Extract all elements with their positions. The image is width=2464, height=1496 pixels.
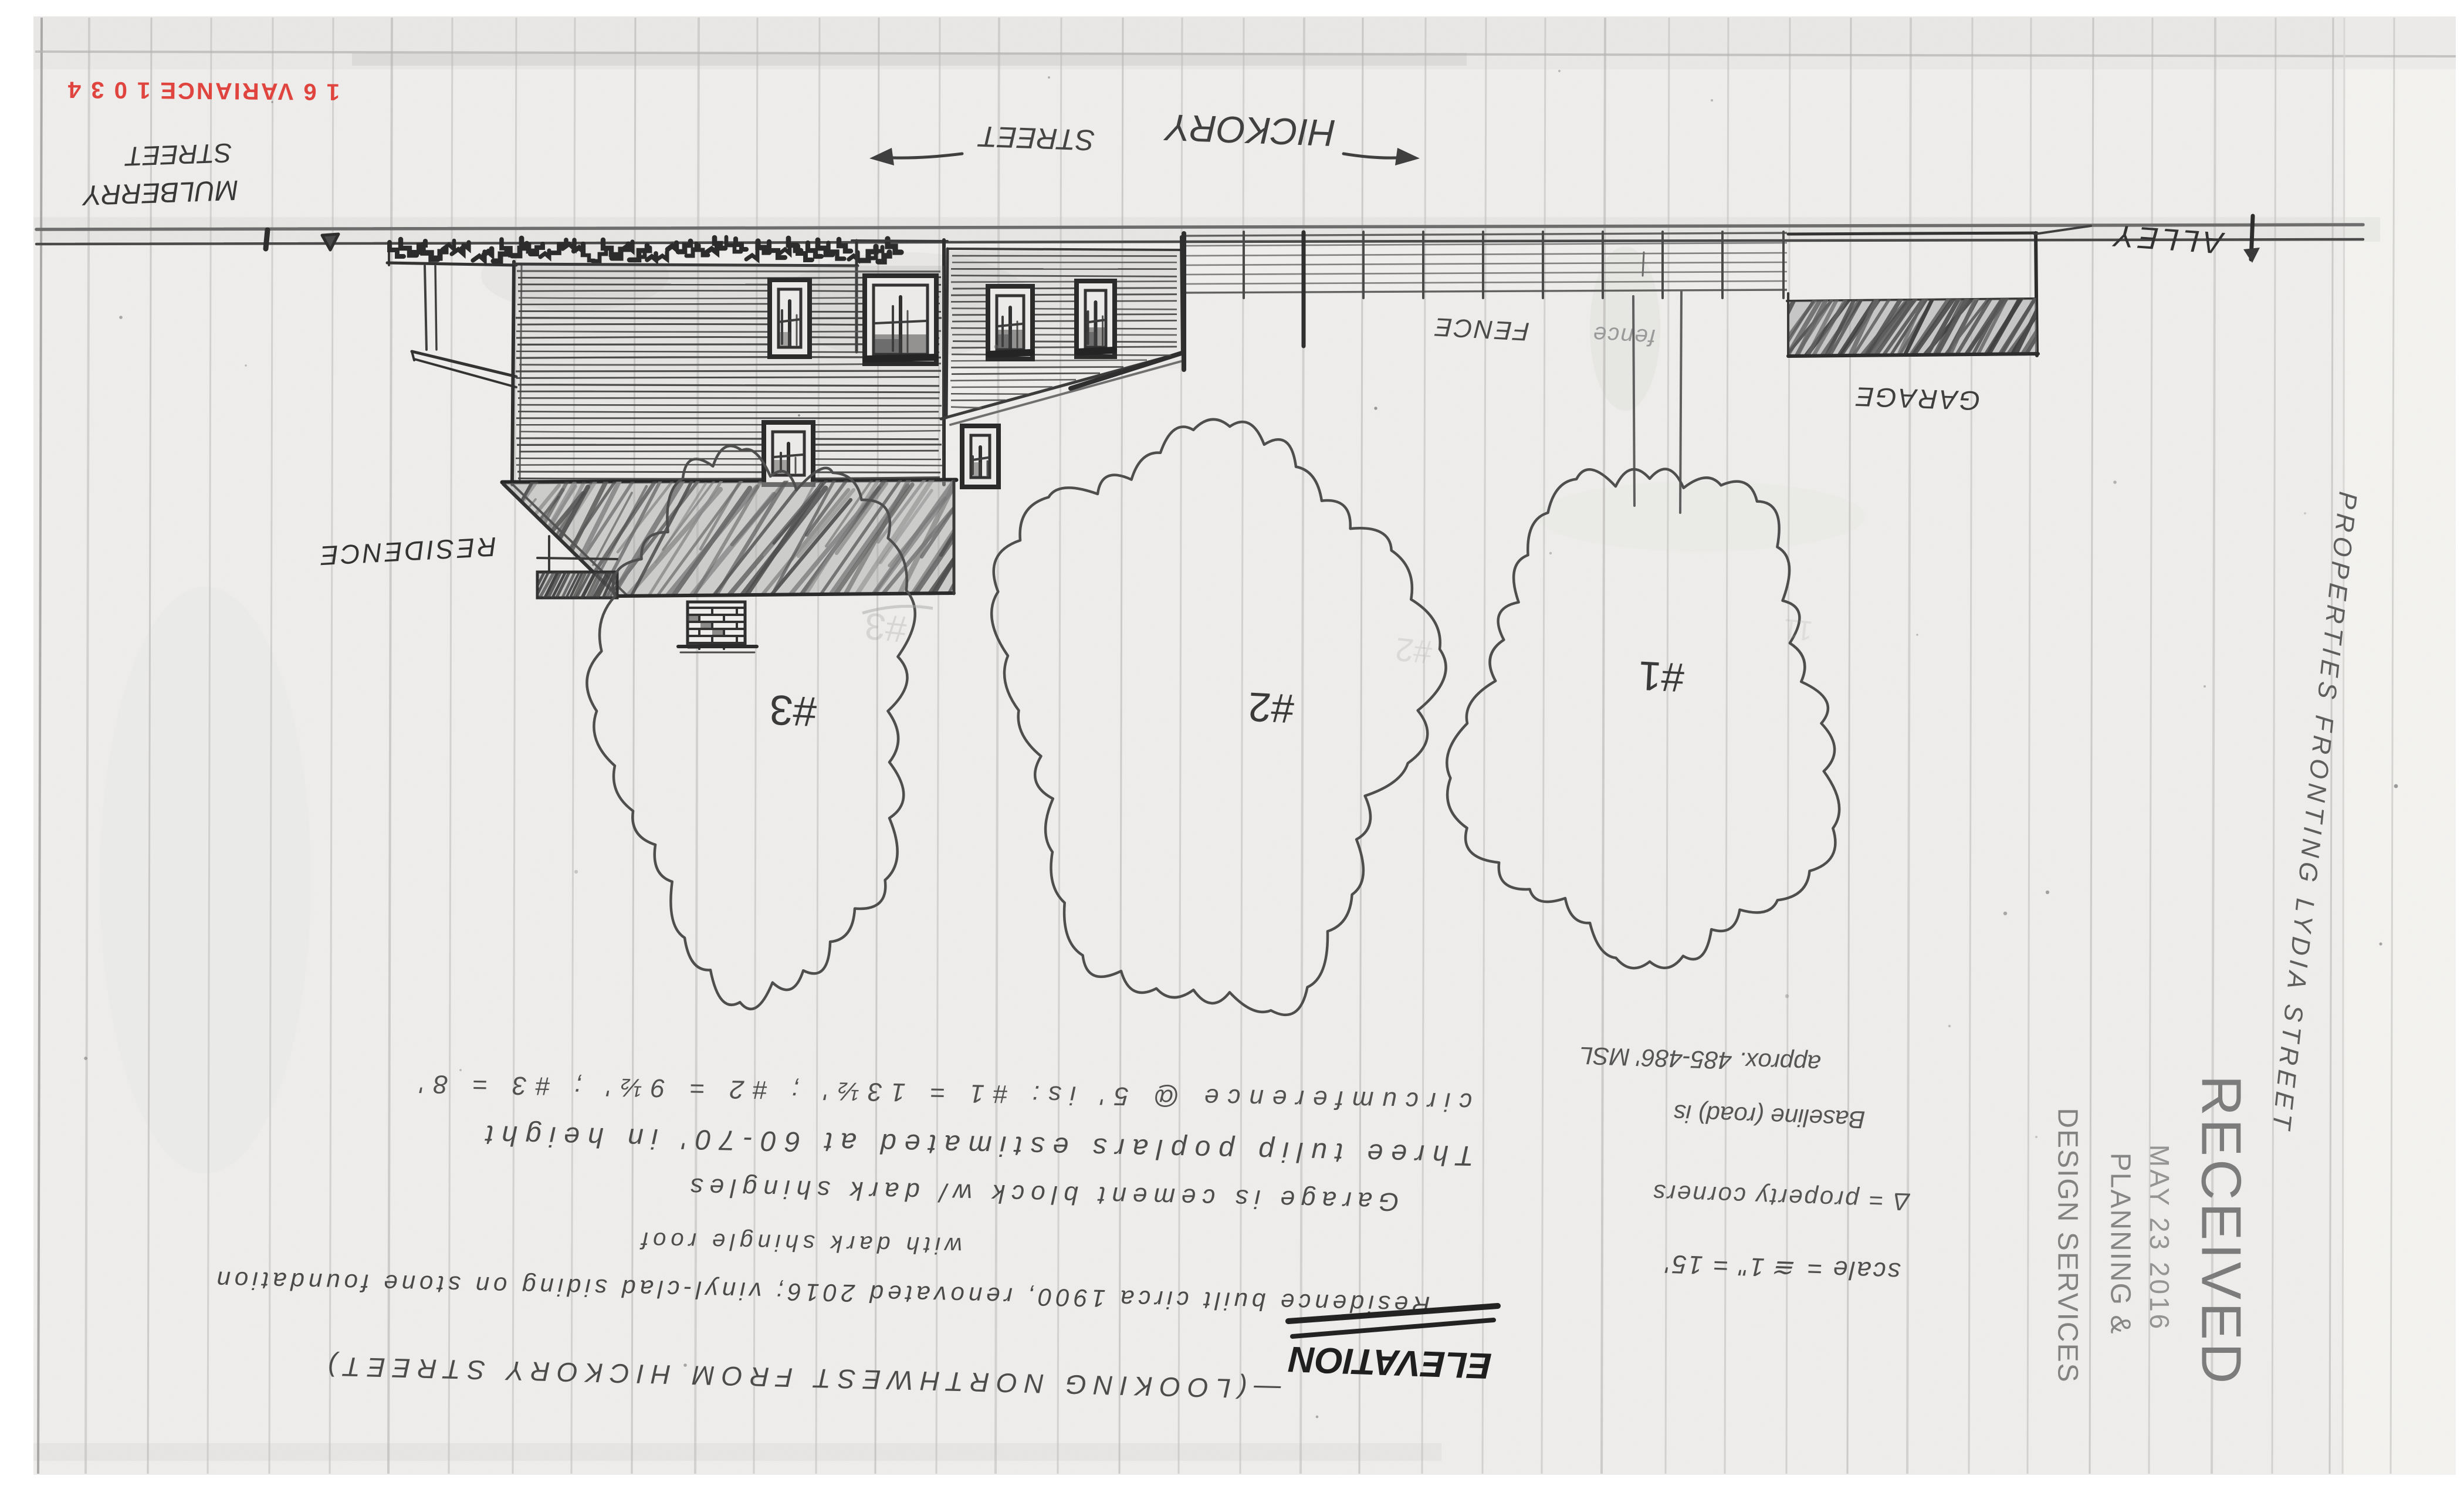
svg-text:GARAGE: GARAGE [1854,381,1981,416]
svg-text:DESIGN SERVICES: DESIGN SERVICES [2052,1108,2083,1383]
svg-text:STREET: STREET [124,138,233,172]
svg-text:HICKORY: HICKORY [1163,106,1336,154]
svg-text:11: 11 [1782,612,1814,647]
svg-text:#2: #2 [1247,684,1295,732]
svg-text:MAY 23 2016: MAY 23 2016 [2144,1145,2175,1332]
svg-text:STREET: STREET [977,120,1096,157]
svg-text:MULBERRY: MULBERRY [81,174,239,211]
svg-text:FENCE: FENCE [1433,312,1530,346]
svg-text:#2: #2 [1393,631,1434,671]
svg-text:#1: #1 [1637,653,1685,701]
svg-text:ELEVATION: ELEVATION [1288,1339,1492,1386]
svg-text:#3: #3 [769,686,818,735]
svg-text:PLANNING &: PLANNING & [2104,1153,2135,1335]
svg-text:1 6 VARIANCE 1 0 3 4: 1 6 VARIANCE 1 0 3 4 [66,76,340,104]
svg-text:RECEIVED: RECEIVED [2190,1075,2253,1387]
svg-text:fence: fence [1592,321,1656,351]
